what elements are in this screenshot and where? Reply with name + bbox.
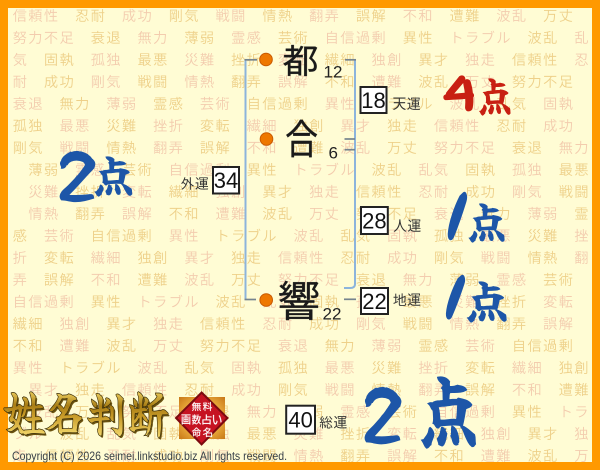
svg-text:6: 6 — [329, 144, 338, 163]
svg-text:Copyright (C) 2026 seimei.link: Copyright (C) 2026 seimei.linkstudio.biz… — [12, 449, 287, 463]
svg-text:22: 22 — [323, 305, 342, 324]
svg-text:28: 28 — [362, 208, 386, 233]
svg-text:34: 34 — [214, 168, 238, 193]
svg-text:22: 22 — [362, 289, 386, 314]
svg-text:40: 40 — [288, 408, 312, 433]
svg-text:18: 18 — [361, 88, 385, 113]
svg-text:12: 12 — [324, 63, 343, 82]
